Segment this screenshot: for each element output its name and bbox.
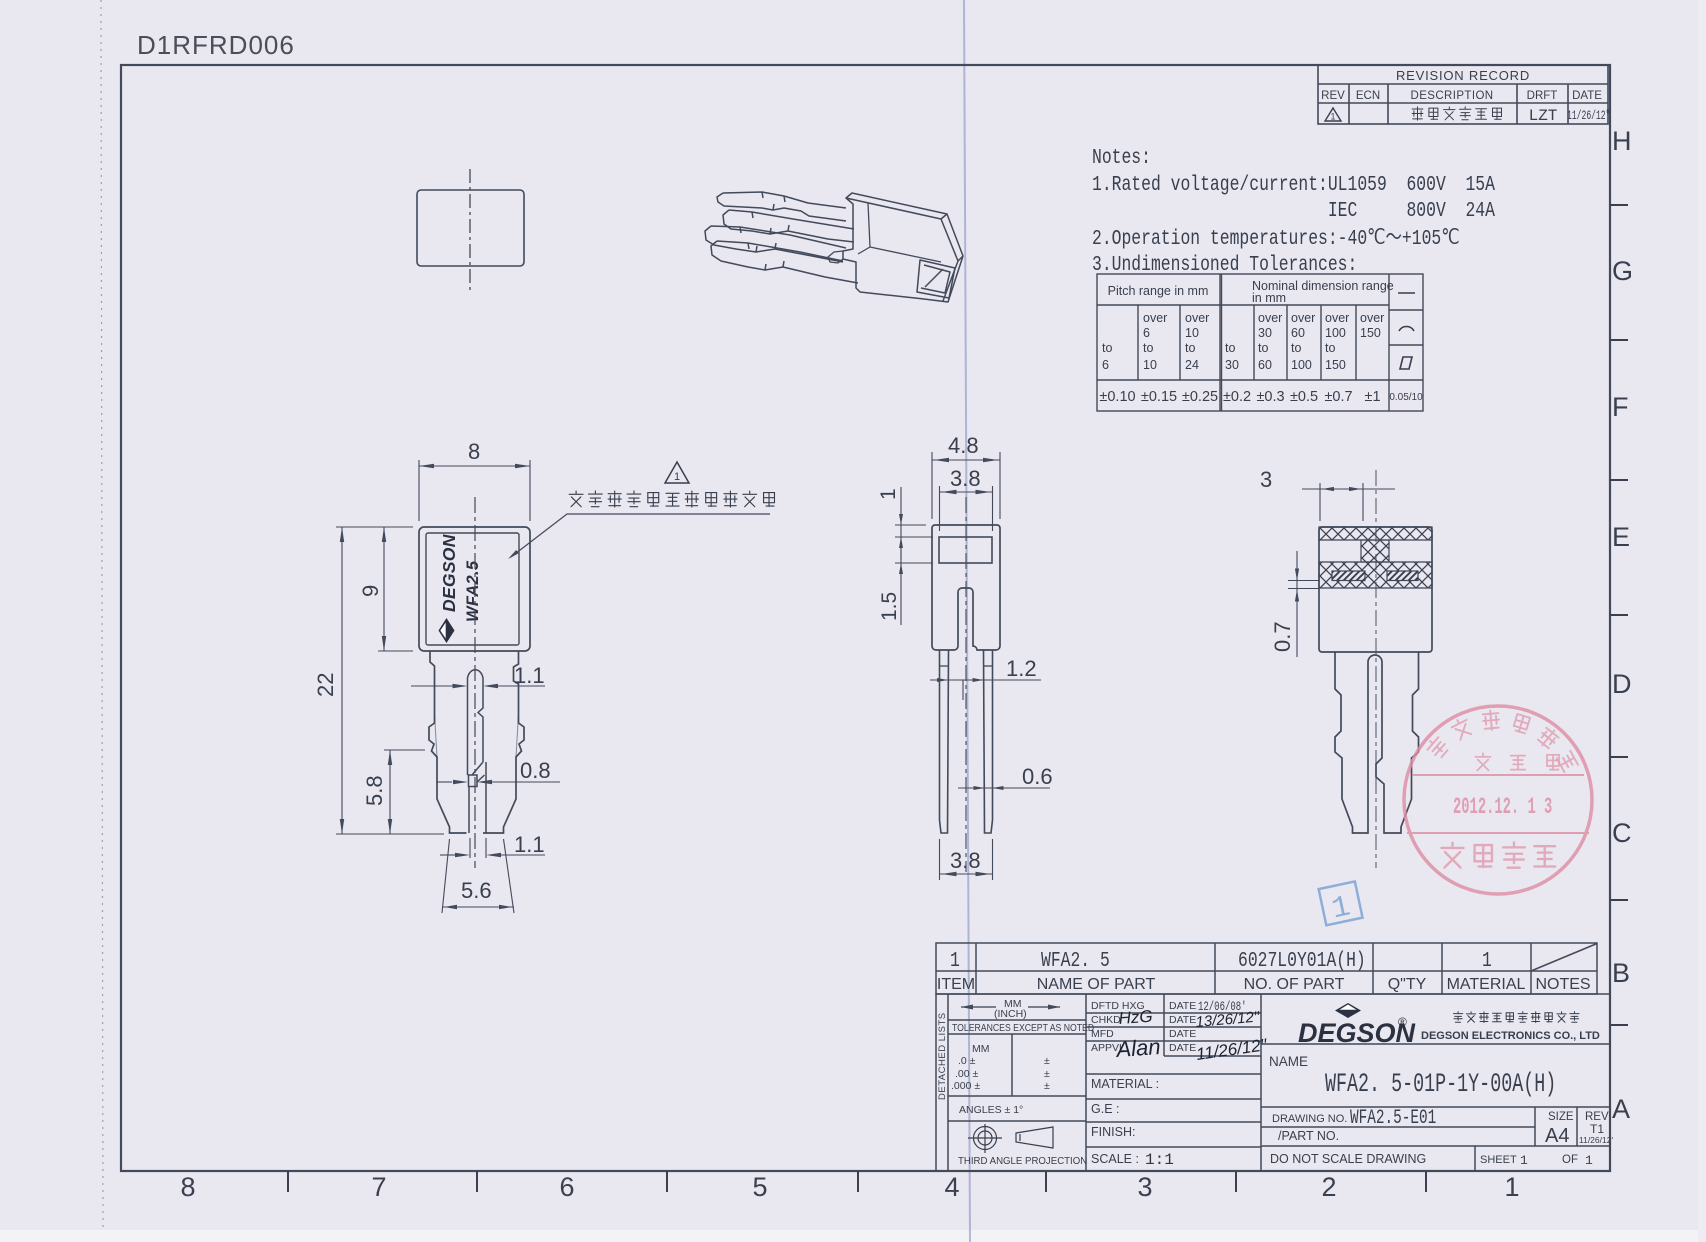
svg-text:5.6: 5.6 <box>461 878 492 903</box>
svg-text:SCALE :: SCALE : <box>1091 1152 1139 1166</box>
svg-text:1.1: 1.1 <box>514 663 545 688</box>
svg-text:150: 150 <box>1325 358 1346 372</box>
svg-text:±: ± <box>1044 1055 1050 1067</box>
svg-text:1: 1 <box>1504 1172 1519 1202</box>
svg-text:H: H <box>1612 126 1632 156</box>
svg-text:6: 6 <box>1143 326 1150 340</box>
svg-text:3.8: 3.8 <box>950 466 981 491</box>
svg-text:LZT: LZT <box>1529 107 1558 125</box>
svg-text:DATE: DATE <box>1169 1000 1196 1012</box>
svg-text:8: 8 <box>180 1172 195 1202</box>
svg-text:1:1: 1:1 <box>1145 1151 1174 1169</box>
svg-text:B: B <box>1612 958 1630 988</box>
svg-text:SHEET: SHEET <box>1480 1154 1517 1166</box>
svg-text:100: 100 <box>1291 358 1312 372</box>
svg-text:FINISH:: FINISH: <box>1091 1125 1135 1139</box>
svg-text:11/26/12″: 11/26/12″ <box>1567 109 1610 123</box>
svg-text:A4: A4 <box>1545 1125 1569 1147</box>
svg-text:±0.15: ±0.15 <box>1141 389 1177 405</box>
svg-text:DEGSON ELECTRONICS CO., LTD: DEGSON ELECTRONICS CO., LTD <box>1421 1030 1600 1042</box>
svg-text:3.8: 3.8 <box>950 848 981 873</box>
svg-text:0.6: 0.6 <box>1022 764 1053 789</box>
svg-text:30: 30 <box>1258 326 1272 340</box>
svg-text:to: to <box>1185 341 1195 355</box>
svg-text:10: 10 <box>1185 326 1199 340</box>
svg-text:1: 1 <box>877 488 900 500</box>
svg-text:IEC 800V 24A: IEC 800V 24A <box>1092 198 1496 223</box>
svg-text:Q"TY: Q"TY <box>1388 976 1427 993</box>
svg-text:1: 1 <box>1482 948 1492 973</box>
svg-text:6027L0Y01A(H): 6027L0Y01A(H) <box>1238 948 1366 973</box>
svg-text:®: ® <box>1398 1015 1407 1029</box>
svg-text:MATERIAL :: MATERIAL : <box>1091 1077 1159 1091</box>
svg-text:0.7: 0.7 <box>1270 621 1295 652</box>
svg-text:MATERIAL: MATERIAL <box>1447 976 1526 993</box>
svg-text:±: ± <box>1044 1068 1050 1080</box>
svg-text:6: 6 <box>1102 358 1109 372</box>
svg-text:2: 2 <box>1321 1172 1336 1202</box>
svg-text:3: 3 <box>1137 1172 1152 1202</box>
svg-text:Notes:: Notes: <box>1092 145 1151 170</box>
svg-text:to: to <box>1258 341 1268 355</box>
svg-text:REVISION RECORD: REVISION RECORD <box>1396 68 1530 83</box>
svg-text:D: D <box>1612 669 1632 699</box>
svg-text:1: 1 <box>674 471 680 483</box>
svg-text:DATE: DATE <box>1169 1014 1196 1026</box>
svg-text:over: over <box>1258 311 1282 325</box>
svg-text:60: 60 <box>1258 358 1272 372</box>
svg-text:DATE: DATE <box>1572 90 1602 102</box>
svg-text:DEGSON: DEGSON <box>439 534 459 612</box>
svg-text:over: over <box>1360 311 1384 325</box>
svg-text:to: to <box>1325 341 1335 355</box>
svg-text:0.8: 0.8 <box>520 758 551 783</box>
svg-text:MFD: MFD <box>1091 1028 1114 1040</box>
svg-text:THIRD ANGLE PROJECTION: THIRD ANGLE PROJECTION <box>958 1156 1087 1167</box>
svg-text:(INCH): (INCH) <box>994 1008 1027 1020</box>
svg-text:G.E :: G.E : <box>1091 1102 1119 1116</box>
svg-text:.00 ±: .00 ± <box>955 1068 979 1080</box>
svg-text:±0.10: ±0.10 <box>1099 389 1135 405</box>
svg-text:1: 1 <box>1520 1153 1528 1168</box>
svg-text:WFA2.5-E01: WFA2.5-E01 <box>1350 1107 1436 1130</box>
svg-text:over: over <box>1291 311 1315 325</box>
svg-text:60: 60 <box>1291 326 1305 340</box>
svg-text:±: ± <box>1044 1080 1050 1092</box>
svg-text:.0 ±: .0 ± <box>958 1055 976 1067</box>
svg-text:7: 7 <box>371 1172 386 1202</box>
svg-text:/PART NO.: /PART NO. <box>1278 1129 1339 1143</box>
svg-text:1.5: 1.5 <box>878 592 901 621</box>
svg-text:DRFT: DRFT <box>1527 90 1558 102</box>
svg-text:DETACHED LISTS: DETACHED LISTS <box>937 1012 948 1100</box>
svg-text:±0.2: ±0.2 <box>1223 389 1251 405</box>
svg-text:±0.5: ±0.5 <box>1290 389 1318 405</box>
svg-text:1.1: 1.1 <box>514 832 545 857</box>
svg-text:WFA2. 5-01P-1Y-00A(H): WFA2. 5-01P-1Y-00A(H) <box>1325 1069 1556 1099</box>
svg-text:OF: OF <box>1562 1154 1578 1166</box>
svg-text:TOLERANCES EXCEPT AS NOTED: TOLERANCES EXCEPT AS NOTED <box>952 1022 1094 1033</box>
svg-text:NOTES: NOTES <box>1535 976 1590 993</box>
svg-text:±1: ±1 <box>1364 389 1380 405</box>
svg-text:NO. OF PART: NO. OF PART <box>1244 976 1345 993</box>
svg-text:Pitch range in mm: Pitch range in mm <box>1108 284 1209 298</box>
svg-text:22: 22 <box>313 673 338 697</box>
svg-text:C: C <box>1612 818 1632 848</box>
svg-text:1: 1 <box>1330 112 1335 122</box>
svg-text:over: over <box>1185 311 1209 325</box>
svg-text:2.Operation temperatures:-40℃～: 2.Operation temperatures:-40℃～+105℃ <box>1092 226 1460 251</box>
svg-text:E: E <box>1612 522 1630 552</box>
svg-text:REV: REV <box>1321 90 1345 102</box>
svg-text:T1: T1 <box>1590 1122 1604 1136</box>
svg-text:WFA2.5: WFA2.5 <box>464 560 482 622</box>
svg-text:5: 5 <box>752 1172 767 1202</box>
svg-text:NAME: NAME <box>1269 1054 1308 1069</box>
svg-text:1.2: 1.2 <box>1006 656 1037 681</box>
svg-text:±0.25: ±0.25 <box>1182 389 1218 405</box>
svg-text:in mm: in mm <box>1252 291 1286 305</box>
svg-text:4: 4 <box>944 1172 959 1202</box>
svg-text:HzG: HzG <box>1118 1007 1153 1028</box>
svg-text:to: to <box>1225 341 1235 355</box>
svg-text:11/26/12′: 11/26/12′ <box>1579 1135 1613 1145</box>
svg-text:ECN: ECN <box>1356 90 1380 102</box>
svg-text:A: A <box>1612 1094 1630 1124</box>
svg-text:DATE: DATE <box>1169 1028 1196 1040</box>
svg-text:Alan: Alan <box>1114 1034 1162 1062</box>
svg-text:to: to <box>1102 341 1112 355</box>
svg-text:4.8: 4.8 <box>948 433 979 458</box>
svg-text:to: to <box>1143 341 1153 355</box>
svg-text:over: over <box>1325 311 1349 325</box>
svg-text:G: G <box>1612 256 1633 286</box>
svg-text:DRAWING NO.: DRAWING NO. <box>1272 1113 1347 1125</box>
svg-text:5.8: 5.8 <box>362 775 387 806</box>
svg-text:DATE: DATE <box>1169 1042 1196 1054</box>
svg-text:DO NOT SCALE DRAWING: DO NOT SCALE DRAWING <box>1270 1152 1426 1166</box>
svg-text:1: 1 <box>1585 1153 1593 1168</box>
svg-text:WFA2. 5: WFA2. 5 <box>1041 948 1110 973</box>
svg-text:D1RFRD006: D1RFRD006 <box>137 30 295 60</box>
svg-text:±0.3: ±0.3 <box>1256 389 1284 405</box>
svg-text:F: F <box>1612 392 1629 422</box>
svg-text:8: 8 <box>468 439 480 464</box>
svg-text:100: 100 <box>1325 326 1346 340</box>
svg-text:1: 1 <box>950 948 960 973</box>
svg-text:24: 24 <box>1185 358 1199 372</box>
svg-text:.000 ±: .000 ± <box>951 1080 980 1092</box>
svg-text:DESCRIPTION: DESCRIPTION <box>1411 90 1494 102</box>
svg-text:1.Rated voltage/current:UL1059: 1.Rated voltage/current:UL1059 600V 15A <box>1092 172 1496 197</box>
svg-text:MM: MM <box>972 1043 990 1055</box>
svg-text:±0.7: ±0.7 <box>1324 389 1352 405</box>
svg-text:0.05/10: 0.05/10 <box>1389 392 1423 403</box>
svg-text:6: 6 <box>559 1172 574 1202</box>
svg-text:150: 150 <box>1360 326 1381 340</box>
svg-text:ANGLES ± 1°: ANGLES ± 1° <box>959 1104 1023 1116</box>
svg-text:2012.12. 1 3: 2012.12. 1 3 <box>1453 794 1552 821</box>
svg-text:SIZE: SIZE <box>1548 1111 1574 1123</box>
svg-text:9: 9 <box>358 585 383 597</box>
svg-text:3.Undimensioned Tolerances:: 3.Undimensioned Tolerances: <box>1092 252 1357 277</box>
svg-text:NAME OF PART: NAME OF PART <box>1037 976 1156 993</box>
svg-text:ITEM: ITEM <box>937 976 975 993</box>
svg-text:10: 10 <box>1143 358 1157 372</box>
svg-text:30: 30 <box>1225 358 1239 372</box>
svg-text:3: 3 <box>1260 467 1272 492</box>
svg-text:over: over <box>1143 311 1167 325</box>
svg-text:CHKD: CHKD <box>1091 1014 1121 1026</box>
svg-text:to: to <box>1291 341 1301 355</box>
